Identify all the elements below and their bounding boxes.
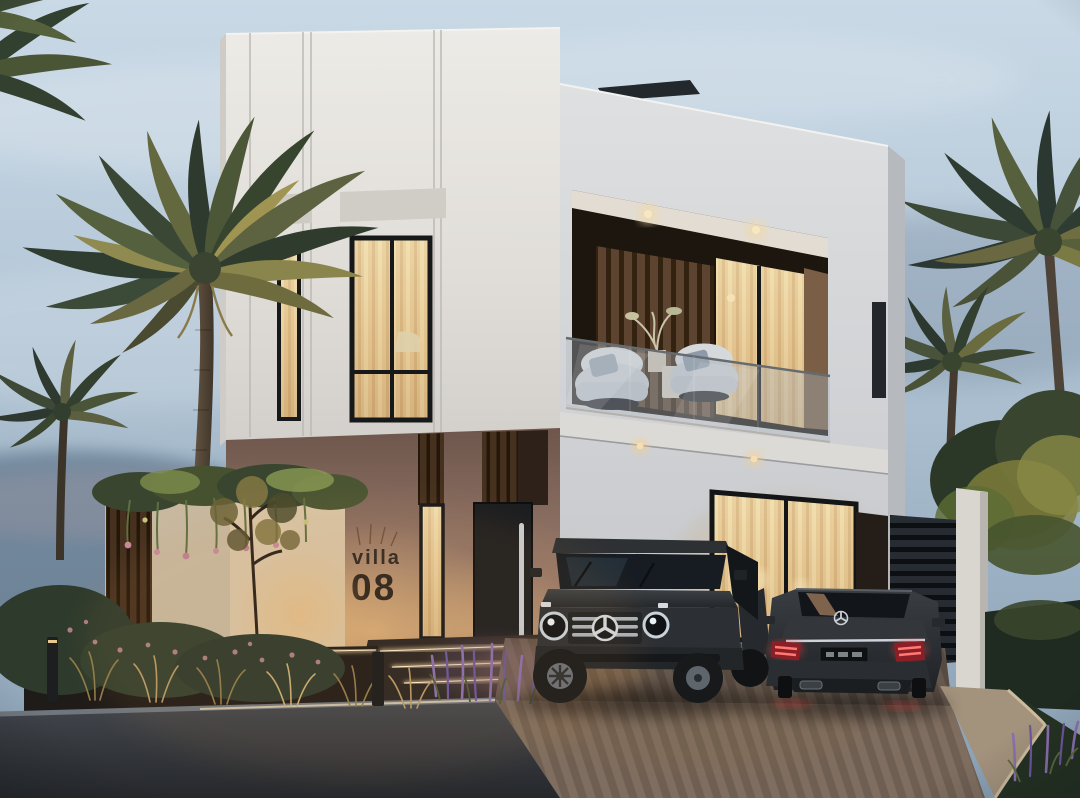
vignette: [0, 0, 1080, 798]
villa-exterior-render: villa 08: [0, 0, 1080, 798]
